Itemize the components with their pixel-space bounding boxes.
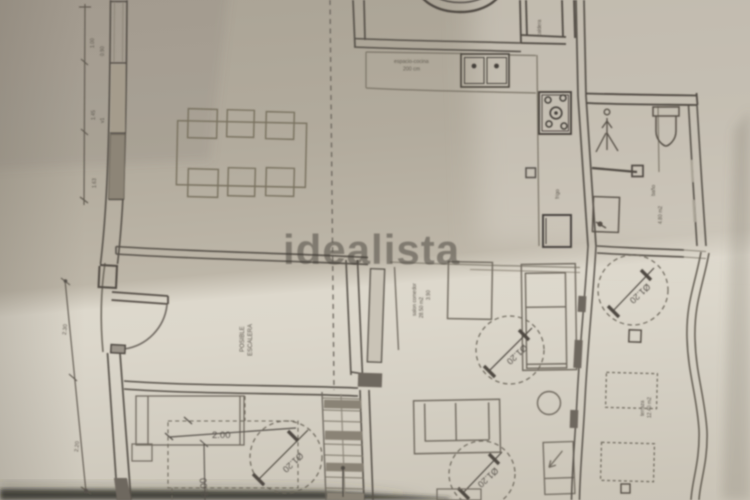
svg-text:caldera: caldera [537,19,543,36]
svg-text:terraza: terraza [640,400,646,416]
svg-text:1.63: 1.63 [92,178,98,188]
svg-text:1.45: 1.45 [91,110,97,120]
svg-text:2.30: 2.30 [62,324,69,335]
svg-text:idealista: idealista [283,226,460,273]
svg-text:0.90: 0.90 [100,46,106,56]
svg-text:2.20: 2.20 [74,441,81,452]
svg-text:baño: baño [651,185,657,196]
svg-text:2.00: 2.00 [212,430,231,441]
svg-text:POSIBLE: POSIBLE [240,326,246,352]
svg-text:salon comedor: salon comedor [412,283,418,316]
svg-text:v1: v1 [100,118,106,124]
svg-text:3.90: 3.90 [426,290,432,300]
svg-text:frigo: frigo [555,189,561,199]
svg-text:200 cm: 200 cm [403,67,420,73]
svg-text:28.50 m2: 28.50 m2 [419,297,425,318]
svg-text:2.00: 2.00 [198,477,211,497]
svg-text:1.00: 1.00 [90,38,96,48]
svg-text:ESCALERA: ESCALERA [248,324,254,356]
svg-text:4.80 m2: 4.80 m2 [658,206,664,224]
svg-text:espacio-cocina: espacio-cocina [394,59,429,65]
svg-text:12.40 m2: 12.40 m2 [647,397,653,418]
